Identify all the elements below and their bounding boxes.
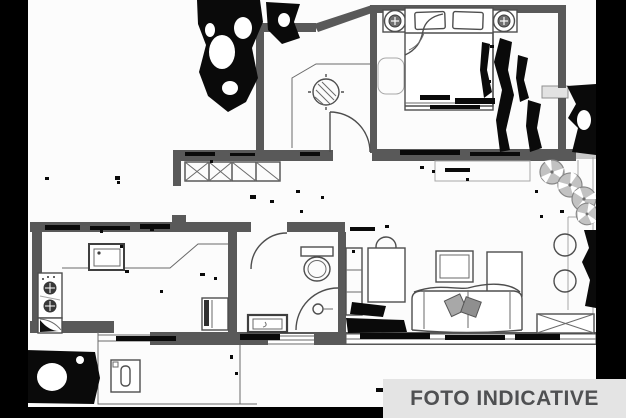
washing-machine xyxy=(111,360,140,392)
watermark-label: FOTO INDICATIVE xyxy=(410,387,599,411)
sofa xyxy=(412,284,522,332)
scan-border-bottom xyxy=(0,407,385,418)
bathroom-sink xyxy=(248,315,287,332)
nightstand-left xyxy=(383,10,408,32)
scanned-floorplan-image: FOTO INDICATIVE xyxy=(0,0,626,418)
kitchen-sink xyxy=(89,244,124,270)
scan-border-right xyxy=(596,0,626,383)
photo-indicative-banner: FOTO INDICATIVE xyxy=(383,379,626,418)
desk xyxy=(368,248,405,302)
floor-plan-drawing xyxy=(0,0,626,418)
radiator xyxy=(537,314,594,333)
fridge-cabinet xyxy=(202,298,228,330)
double-bed xyxy=(405,8,493,110)
kitchen-corner-unit xyxy=(38,318,62,333)
coffee-table xyxy=(436,251,473,282)
nightstand-right xyxy=(492,10,517,32)
kitchen-stove xyxy=(38,273,62,318)
scan-border-left xyxy=(0,0,28,418)
